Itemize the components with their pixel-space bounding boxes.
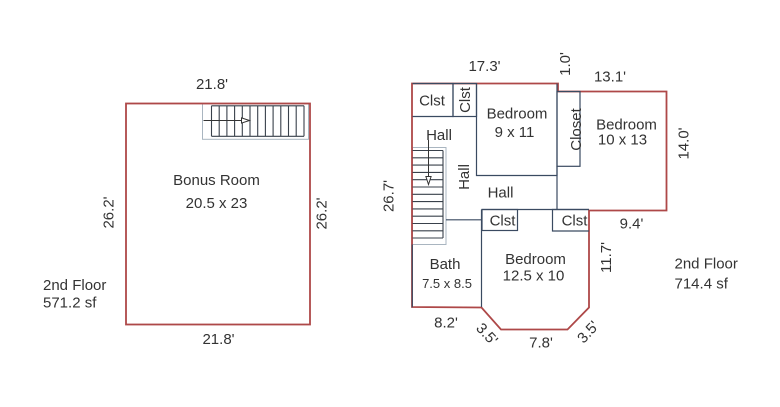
- svg-text:Bedroom: Bedroom: [487, 106, 548, 123]
- svg-text:14.0': 14.0': [676, 127, 693, 159]
- svg-text:2nd Floor: 2nd Floor: [675, 256, 738, 273]
- svg-text:Bath: Bath: [430, 256, 461, 273]
- svg-text:26.7': 26.7': [381, 180, 398, 212]
- svg-text:7.5 x 8.5: 7.5 x 8.5: [422, 276, 472, 291]
- svg-text:Clst: Clst: [457, 86, 474, 113]
- svg-text:13.1': 13.1': [594, 69, 626, 86]
- svg-text:Clst: Clst: [490, 213, 517, 230]
- svg-text:1.0': 1.0': [557, 52, 574, 76]
- svg-text:8.2': 8.2': [434, 315, 458, 332]
- svg-text:Clst: Clst: [562, 213, 589, 230]
- svg-text:21.8': 21.8': [196, 76, 228, 93]
- svg-text:11.7': 11.7': [598, 242, 615, 273]
- svg-text:10 x 13: 10 x 13: [598, 132, 647, 149]
- svg-text:571.2 sf: 571.2 sf: [43, 295, 97, 312]
- svg-text:Hall: Hall: [426, 127, 452, 144]
- svg-text:9.4': 9.4': [620, 216, 644, 233]
- svg-text:21.8': 21.8': [202, 331, 234, 348]
- svg-text:Clst: Clst: [419, 93, 446, 110]
- svg-text:Bonus Room: Bonus Room: [173, 172, 260, 189]
- svg-text:2nd Floor: 2nd Floor: [43, 277, 106, 294]
- svg-text:26.2': 26.2': [314, 197, 331, 229]
- svg-text:17.3': 17.3': [468, 58, 500, 75]
- svg-text:Closet: Closet: [568, 107, 585, 150]
- svg-text:26.2': 26.2': [101, 196, 118, 228]
- svg-text:20.5 x 23: 20.5 x 23: [186, 195, 248, 212]
- svg-text:9 x 11: 9 x 11: [495, 124, 535, 141]
- svg-text:Hall: Hall: [488, 185, 514, 202]
- svg-text:12.5 x 10: 12.5 x 10: [503, 268, 565, 285]
- svg-text:7.8': 7.8': [529, 335, 553, 352]
- svg-text:714.4 sf: 714.4 sf: [675, 276, 729, 293]
- svg-text:Bedroom: Bedroom: [505, 251, 566, 268]
- svg-text:Hall: Hall: [456, 164, 473, 190]
